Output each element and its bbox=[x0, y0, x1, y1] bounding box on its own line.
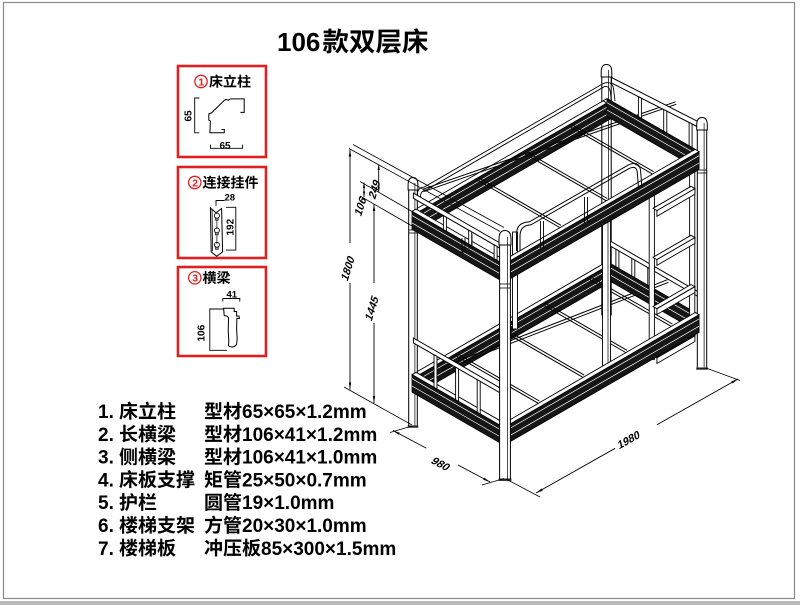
svg-text:3.: 3. bbox=[98, 448, 114, 469]
svg-text:106×41×1.0mm: 106×41×1.0mm bbox=[242, 448, 377, 469]
svg-text:106: 106 bbox=[277, 27, 320, 57]
svg-text:6.: 6. bbox=[98, 516, 114, 537]
svg-text:2: 2 bbox=[192, 177, 198, 189]
svg-text:65: 65 bbox=[184, 110, 195, 122]
svg-text:1.: 1. bbox=[98, 402, 114, 423]
svg-text:7.: 7. bbox=[98, 539, 114, 560]
svg-text:106: 106 bbox=[197, 324, 208, 341]
svg-text:85×300×1.5mm: 85×300×1.5mm bbox=[261, 539, 396, 560]
svg-text:1: 1 bbox=[198, 76, 204, 88]
svg-text:20×30×1.0mm: 20×30×1.0mm bbox=[242, 516, 367, 537]
svg-text:28: 28 bbox=[225, 192, 236, 203]
svg-text:4.: 4. bbox=[98, 470, 114, 491]
svg-text:25×50×0.7mm: 25×50×0.7mm bbox=[242, 470, 367, 491]
svg-text:2.: 2. bbox=[98, 425, 114, 446]
svg-text:3: 3 bbox=[192, 273, 198, 285]
svg-text:65: 65 bbox=[220, 141, 232, 152]
svg-text:106×41×1.2mm: 106×41×1.2mm bbox=[242, 425, 377, 446]
svg-text:65×65×1.2mm: 65×65×1.2mm bbox=[242, 402, 367, 423]
svg-text:41: 41 bbox=[227, 290, 238, 301]
svg-text:5.: 5. bbox=[98, 493, 114, 514]
svg-text:19×1.0mm: 19×1.0mm bbox=[242, 493, 334, 514]
svg-text:192: 192 bbox=[226, 218, 237, 235]
